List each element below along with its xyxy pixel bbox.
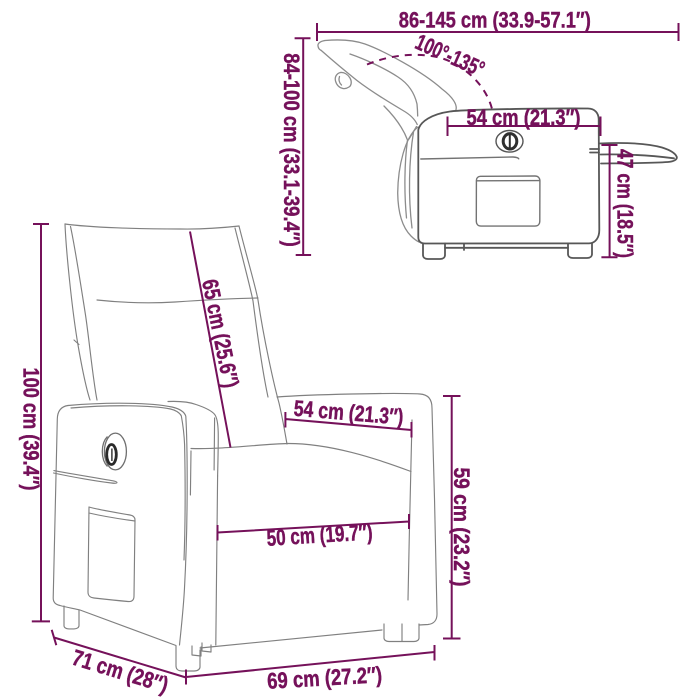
svg-text:84-100 cm (33.1-39.4″): 84-100 cm (33.1-39.4″) [279, 53, 304, 247]
svg-text:47 cm (18.5″): 47 cm (18.5″) [613, 149, 638, 258]
svg-text:54 cm (21.3″): 54 cm (21.3″) [467, 105, 581, 130]
svg-text:86-145 cm (33.9-57.1″): 86-145 cm (33.9-57.1″) [399, 8, 591, 33]
svg-text:59 cm (23.2″): 59 cm (23.2″) [449, 468, 474, 587]
svg-text:100 cm (39.4″): 100 cm (39.4″) [19, 368, 44, 491]
